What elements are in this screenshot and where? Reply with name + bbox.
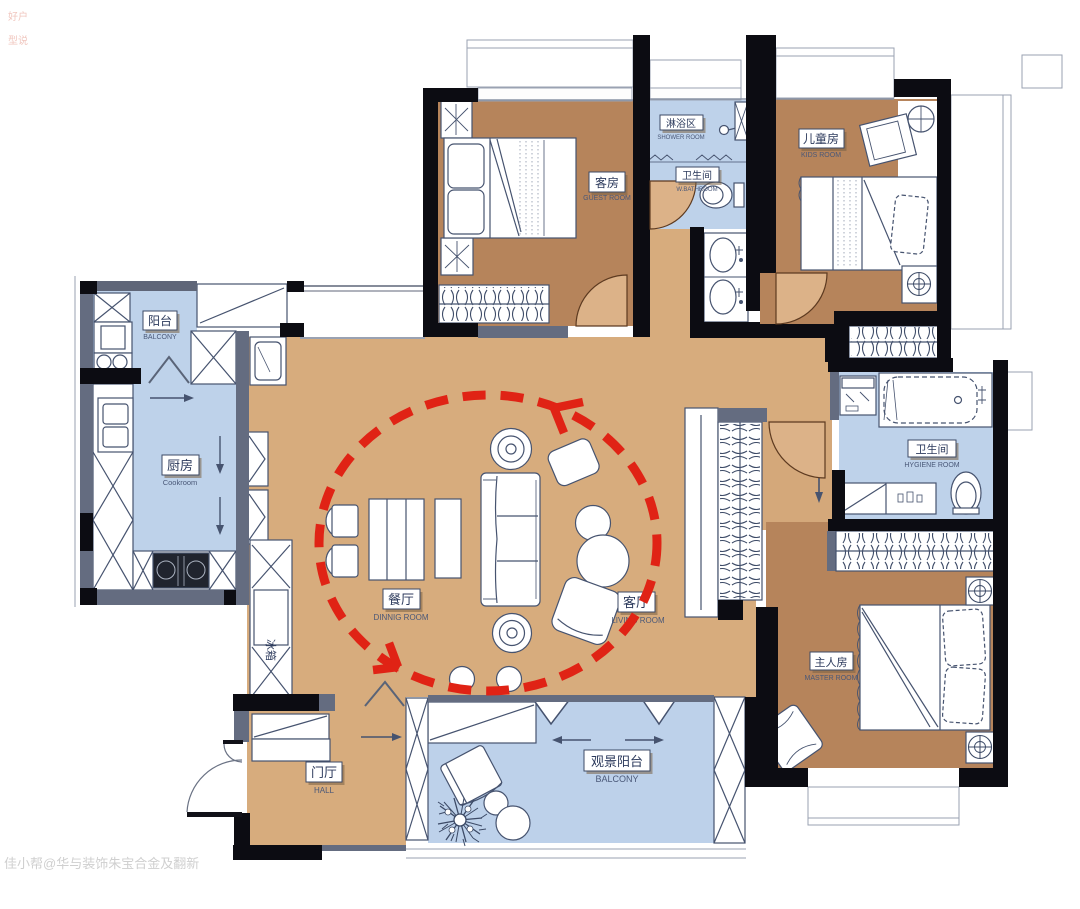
svg-text:好户: 好户 <box>8 10 28 23</box>
svg-text:型说: 型说 <box>8 34 28 47</box>
svg-text:门厅: 门厅 <box>311 765 337 780</box>
svg-text:餐厅: 餐厅 <box>388 592 414 607</box>
svg-text:W.BATHROOM: W.BATHROOM <box>676 187 717 193</box>
svg-text:HALL: HALL <box>314 786 335 795</box>
svg-text:观景阳台: 观景阳台 <box>591 754 643 769</box>
svg-text:阳台: 阳台 <box>148 313 172 328</box>
svg-text:KIDS ROOM: KIDS ROOM <box>801 152 841 159</box>
svg-text:BALCONY: BALCONY <box>595 774 638 784</box>
svg-text:冰箱: 冰箱 <box>264 639 278 661</box>
svg-text:HYGIENE ROOM: HYGIENE ROOM <box>904 462 959 469</box>
svg-text:卫生间: 卫生间 <box>916 442 949 456</box>
svg-text:厨房: 厨房 <box>167 458 193 473</box>
svg-text:儿童房: 儿童房 <box>803 131 839 146</box>
svg-text:BALCONY: BALCONY <box>143 334 177 341</box>
svg-text:DINNIG ROOM: DINNIG ROOM <box>373 613 428 622</box>
svg-text:SHOWER ROOM: SHOWER ROOM <box>657 135 704 141</box>
svg-text:客房: 客房 <box>595 175 619 190</box>
svg-text:佳小帮@华与装饰朱宝合金及翻新: 佳小帮@华与装饰朱宝合金及翻新 <box>4 856 199 871</box>
svg-text:淋浴区: 淋浴区 <box>666 117 696 130</box>
svg-text:主人房: 主人房 <box>815 656 848 669</box>
svg-text:Cookroom: Cookroom <box>163 478 198 487</box>
svg-text:卫生间: 卫生间 <box>682 169 712 182</box>
svg-text:MASTER ROOM: MASTER ROOM <box>805 675 858 682</box>
svg-text:GUEST ROOM: GUEST ROOM <box>583 195 631 202</box>
